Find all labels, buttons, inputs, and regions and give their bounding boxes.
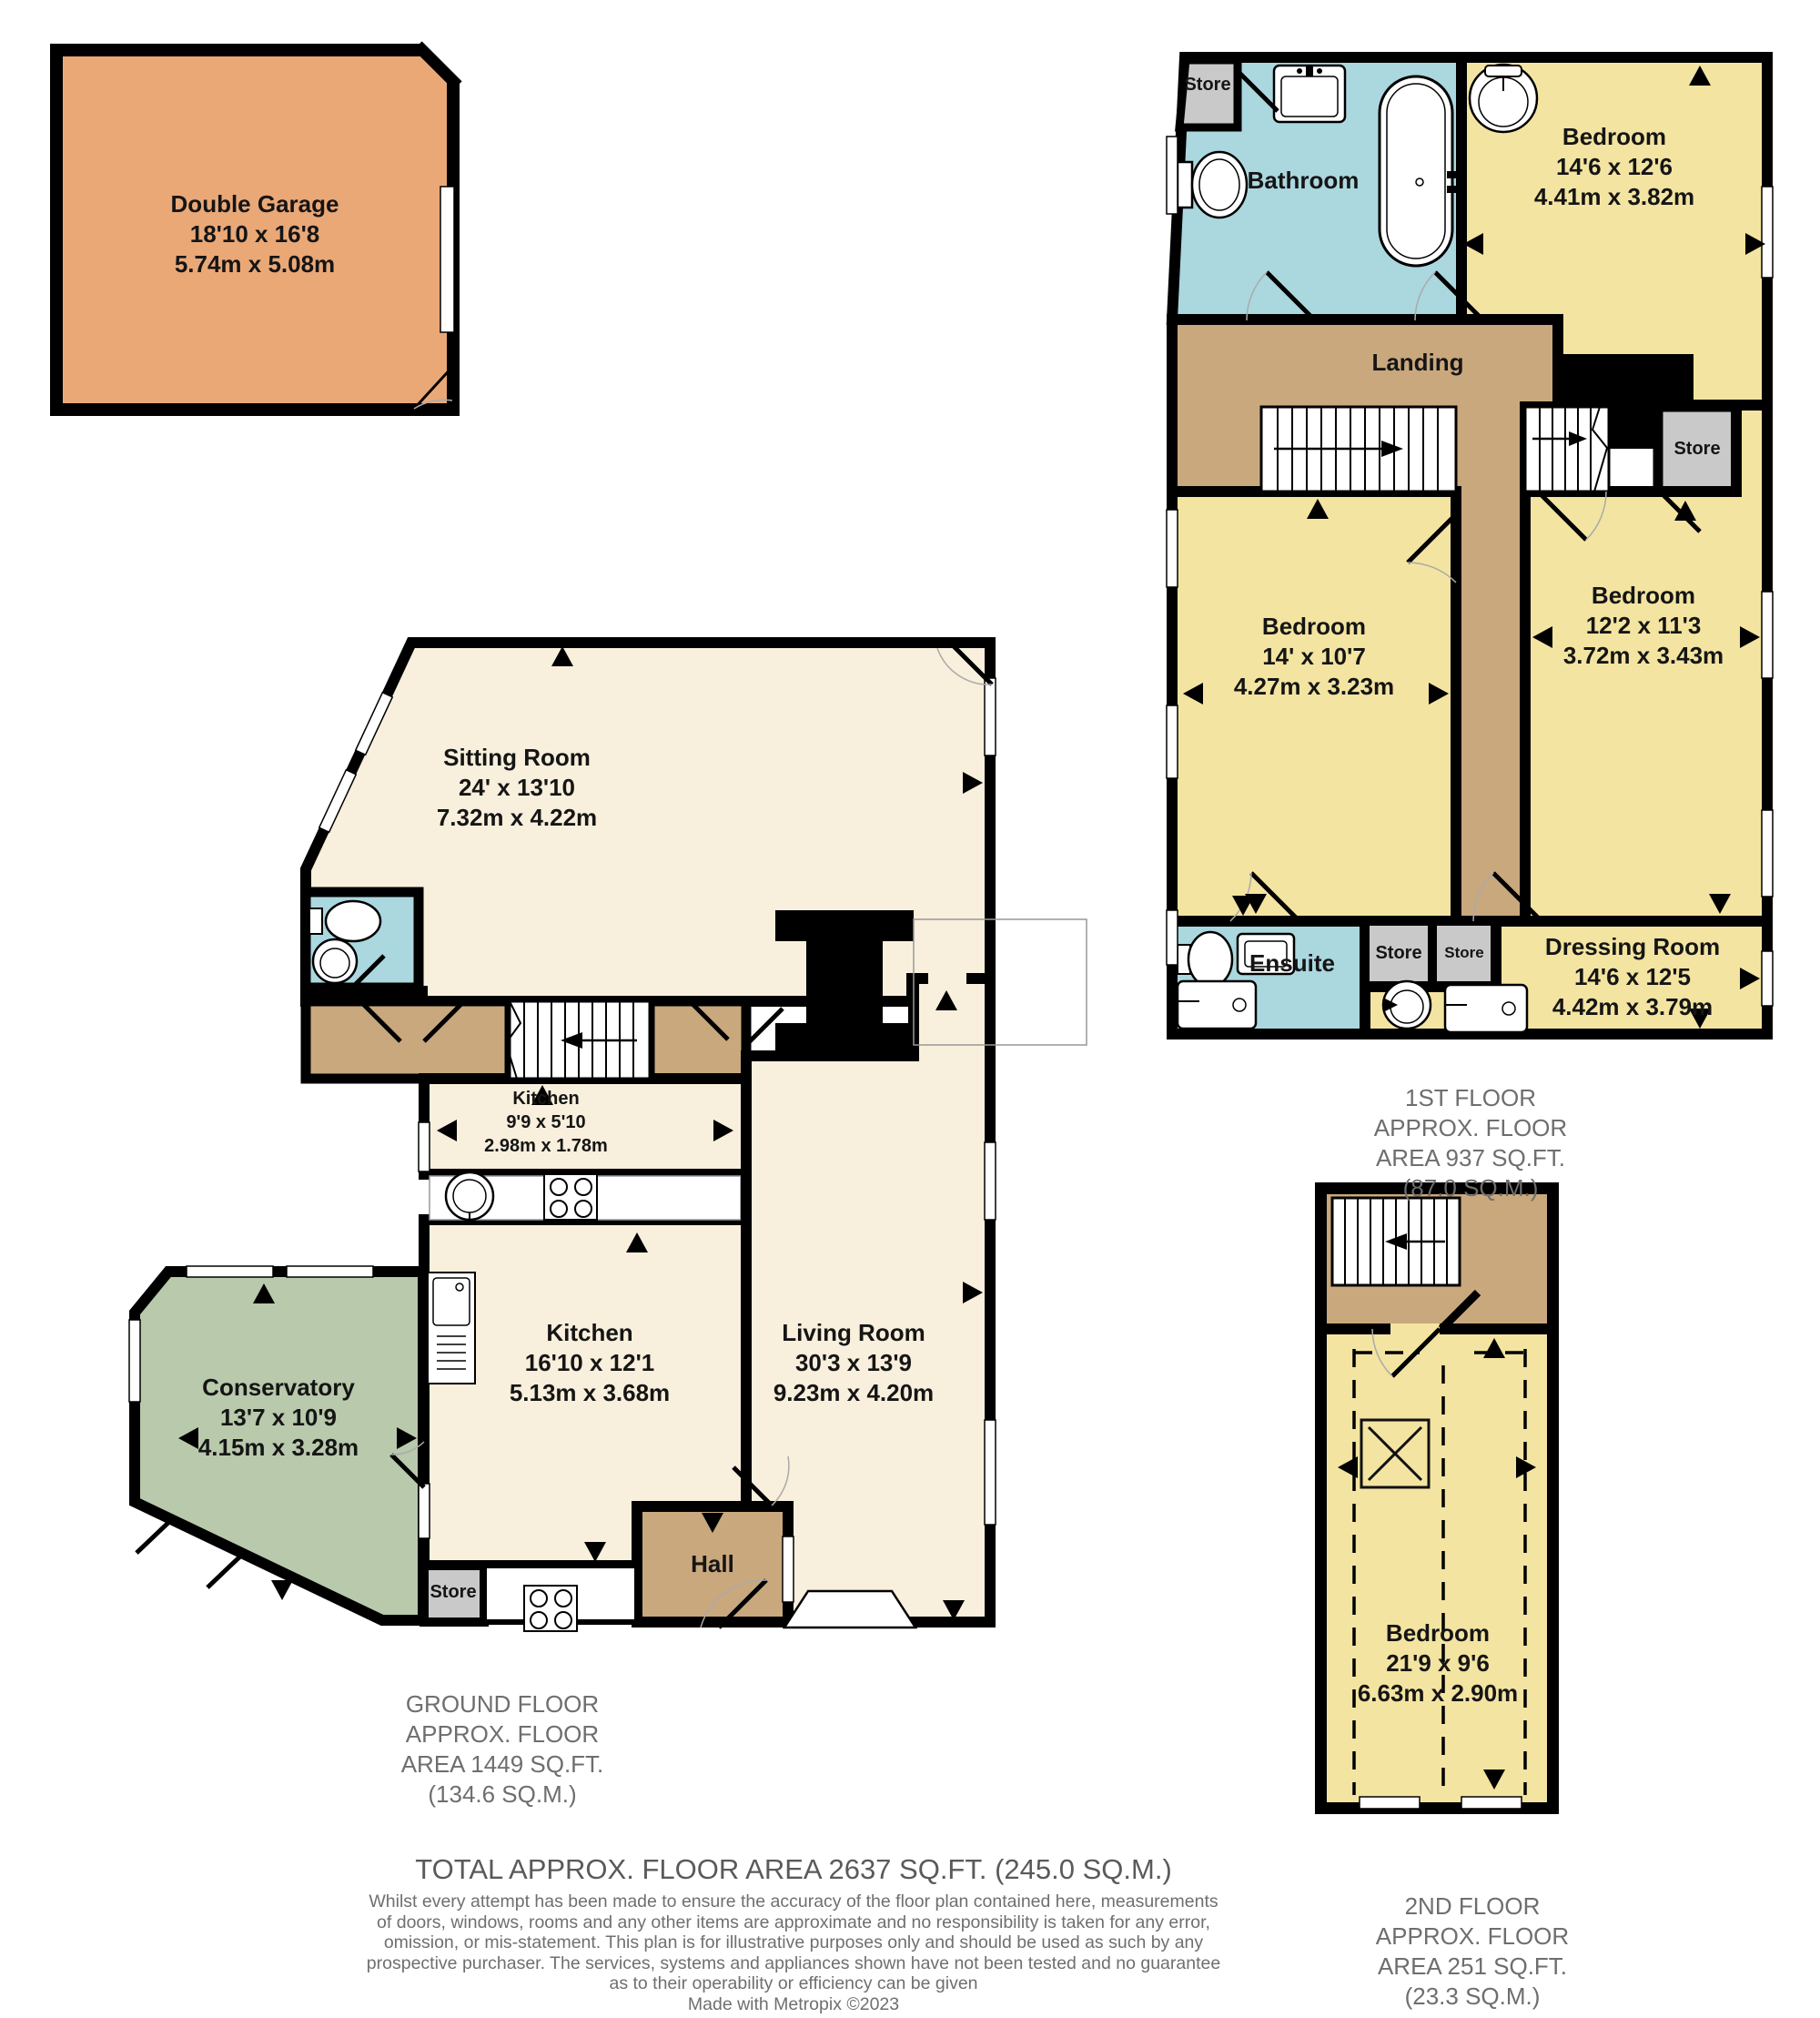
caption-line: AREA 937 SQ.FT.	[1374, 1143, 1567, 1173]
room-size-metric: 6.63m x 2.90m	[1358, 1678, 1518, 1709]
room-label-bedroom-front: Bedroom 14'6 x 12'6 4.41m x 3.82m	[1534, 122, 1694, 212]
room-label-kitchen: Kitchen 16'10 x 12'1 5.13m x 3.68m	[510, 1318, 670, 1408]
room-size-metric: 7.32m x 4.22m	[437, 803, 597, 833]
room-size-imperial: 21'9 x 9'6	[1358, 1648, 1518, 1678]
room-label-bedroom-2f: Bedroom 21'9 x 9'6 6.63m x 2.90m	[1358, 1618, 1518, 1709]
room-size-imperial: 12'2 x 11'3	[1563, 611, 1724, 641]
room-size-metric: 4.42m x 3.79m	[1545, 992, 1720, 1022]
room-size-metric: 4.15m x 3.28m	[198, 1433, 359, 1463]
room-name: Landing	[1371, 348, 1463, 378]
room-size-metric: 4.27m x 3.23m	[1234, 672, 1394, 702]
door-opening	[1390, 1323, 1440, 1334]
room-name: Store	[1673, 437, 1720, 461]
bathtub	[1380, 76, 1456, 266]
room-size-imperial: 14'6 x 12'6	[1534, 152, 1694, 182]
room-label-hall: Hall	[691, 1549, 734, 1579]
room-size-metric: 3.72m x 3.43m	[1563, 641, 1724, 671]
ground-floor-plan	[129, 643, 1087, 1631]
caption-line: APPROX. FLOOR	[1374, 1113, 1567, 1143]
caption-ground-floor: GROUND FLOOR APPROX. FLOOR AREA 1449 SQ.…	[401, 1689, 604, 1810]
disclaimer-line: Whilst every attempt has been made to en…	[367, 1891, 1220, 1912]
room-name: Store	[1375, 941, 1421, 965]
second-floor-plan	[1321, 1189, 1552, 1809]
disclaimer-line: of doors, windows, rooms and any other i…	[367, 1912, 1220, 1933]
total-floor-area: TOTAL APPROX. FLOOR AREA 2637 SQ.FT. (24…	[415, 1853, 1172, 1886]
caption-line: APPROX. FLOOR	[1376, 1922, 1569, 1952]
room-size-imperial: 14' x 10'7	[1234, 642, 1394, 672]
wall-block	[1558, 360, 1688, 407]
room-name: Store	[430, 1580, 476, 1604]
stairs-first-floor-upper	[1525, 407, 1609, 492]
room-name: Bedroom	[1234, 612, 1394, 642]
room-label-conservatory: Conservatory 13'7 x 10'9 4.15m x 3.28m	[198, 1373, 359, 1463]
stairs-second-floor	[1332, 1198, 1460, 1285]
bedroom-front-basin	[1470, 65, 1537, 132]
utility-hob	[524, 1586, 577, 1631]
garage-window	[440, 187, 454, 332]
room-label-landing: Landing	[1371, 348, 1463, 378]
caption-line: AREA 1449 SQ.FT.	[401, 1749, 604, 1780]
room-name: Ensuite	[1249, 948, 1335, 979]
caption-line: 2ND FLOOR	[1376, 1891, 1569, 1922]
floorplan-page: Double Garage 18'10 x 16'8 5.74m x 5.08m…	[0, 0, 1820, 2018]
room-name: Kitchen	[510, 1318, 670, 1348]
disclaimer-line: as to their operability or efficiency ca…	[367, 1973, 1220, 1994]
room-size-imperial: 18'10 x 16'8	[171, 219, 339, 249]
second-floor-bedroom	[1327, 1334, 1547, 1802]
room-name: Bedroom	[1534, 122, 1694, 152]
room-name: Double Garage	[171, 189, 339, 219]
caption-second-floor: 2ND FLOOR APPROX. FLOOR AREA 251 SQ.FT. …	[1376, 1891, 1569, 2012]
room-label-garage: Double Garage 18'10 x 16'8 5.74m x 5.08m	[171, 189, 339, 279]
room-name: Kitchen	[484, 1087, 608, 1110]
room-size-imperial: 13'7 x 10'9	[198, 1403, 359, 1433]
room-label-kitchen-small: Kitchen 9'9 x 5'10 2.98m x 1.78m	[484, 1087, 608, 1158]
room-size-imperial: 9'9 x 5'10	[484, 1110, 608, 1134]
stairs-ground-floor	[506, 1001, 650, 1079]
room-size-metric: 5.74m x 5.08m	[171, 249, 339, 279]
caption-line: GROUND FLOOR	[401, 1689, 604, 1719]
disclaimer-text: Whilst every attempt has been made to en…	[367, 1891, 1220, 2014]
kitchen-sink-drainer	[428, 1273, 475, 1384]
room-label-living-room: Living Room 30'3 x 13'9 9.23m x 4.20m	[773, 1318, 934, 1408]
bathroom-sink	[1274, 66, 1345, 122]
room-size-imperial: 30'3 x 13'9	[773, 1348, 934, 1378]
room-label-store-top: Store	[1184, 73, 1230, 96]
wc-basin	[313, 939, 357, 983]
lobby-room	[306, 1001, 510, 1079]
wall-opening	[928, 973, 966, 984]
stairs-first-floor-main	[1261, 407, 1456, 492]
room-label-sitting-room: Sitting Room 24' x 13'10 7.32m x 4.22m	[437, 743, 597, 833]
room-label-bedroom-left: Bedroom 14' x 10'7 4.27m x 3.23m	[1234, 612, 1394, 702]
caption-line: (87.0 SQ.M.)	[1374, 1173, 1567, 1203]
room-name: Store	[1444, 943, 1483, 962]
room-label-store-landing: Store	[1673, 437, 1720, 461]
room-label-store-small-2: Store	[1444, 943, 1483, 962]
room-name: Conservatory	[198, 1373, 359, 1403]
room-size-metric: 4.41m x 3.82m	[1534, 182, 1694, 212]
room-label-store-gf: Store	[430, 1580, 476, 1604]
caption-line: (23.3 SQ.M.)	[1376, 1982, 1569, 2012]
room-name: Bathroom	[1248, 166, 1360, 196]
ensuite-shower-tray	[1178, 981, 1256, 1029]
made-with-credit: Made with Metropix ©2023	[367, 1994, 1220, 2015]
room-size-imperial: 16'10 x 12'1	[510, 1348, 670, 1378]
room-name: Living Room	[773, 1318, 934, 1348]
room-label-store-small-1: Store	[1375, 941, 1421, 965]
dressing-basin	[1383, 981, 1431, 1029]
room-size-imperial: 24' x 13'10	[437, 773, 597, 803]
disclaimer-line: omission, or mis-statement. This plan is…	[367, 1932, 1220, 1953]
caption-first-floor: 1ST FLOOR APPROX. FLOOR AREA 937 SQ.FT. …	[1374, 1083, 1567, 1203]
caption-line: 1ST FLOOR	[1374, 1083, 1567, 1113]
room-name: Sitting Room	[437, 743, 597, 773]
room-label-ensuite: Ensuite	[1249, 948, 1335, 979]
room-name: Bedroom	[1563, 581, 1724, 611]
bay-window	[784, 1591, 915, 1628]
room-size-metric: 5.13m x 3.68m	[510, 1378, 670, 1408]
wall-block-step	[1609, 407, 1658, 449]
room-label-bathroom: Bathroom	[1248, 166, 1360, 196]
dressing-shower-tray	[1445, 985, 1527, 1032]
room-name: Store	[1184, 73, 1230, 96]
room-size-metric: 9.23m x 4.20m	[773, 1378, 934, 1408]
kitchen-small-hob	[544, 1174, 597, 1220]
room-name: Bedroom	[1358, 1618, 1518, 1648]
caption-line: (134.6 SQ.M.)	[401, 1780, 604, 1810]
room-size-metric: 2.98m x 1.78m	[484, 1134, 608, 1158]
inner-hall-room	[650, 1001, 746, 1079]
room-name: Dressing Room	[1545, 932, 1720, 962]
room-label-bedroom-right: Bedroom 12'2 x 11'3 3.72m x 3.43m	[1563, 581, 1724, 671]
caption-line: AREA 251 SQ.FT.	[1376, 1952, 1569, 1982]
room-label-dressing-room: Dressing Room 14'6 x 12'5 4.42m x 3.79m	[1545, 932, 1720, 1022]
room-name: Hall	[691, 1549, 734, 1579]
bathroom-toilet	[1178, 152, 1247, 218]
caption-line: APPROX. FLOOR	[401, 1719, 604, 1749]
disclaimer-line: prospective purchaser. The services, sys…	[367, 1953, 1220, 1974]
room-size-imperial: 14'6 x 12'5	[1545, 962, 1720, 992]
